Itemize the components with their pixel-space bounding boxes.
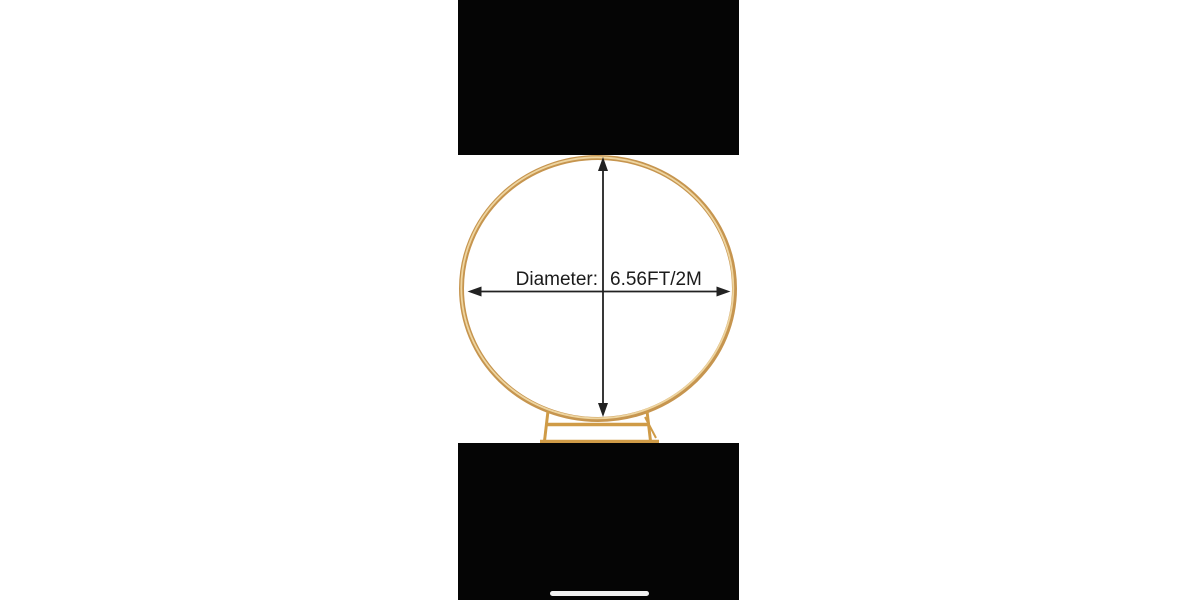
horizontal-arrow-head-right [717, 287, 731, 297]
diameter-label: Diameter: [478, 270, 598, 290]
bottom-letterbox-bar [458, 443, 739, 600]
top-letterbox-bar [458, 0, 739, 155]
diameter-value: 6.56FT/2M [610, 270, 702, 290]
vertical-arrow-head-down [598, 403, 608, 417]
product-photo-canvas: Diameter: 6.56FT/2M [0, 0, 1200, 600]
home-indicator-bar [550, 591, 649, 596]
